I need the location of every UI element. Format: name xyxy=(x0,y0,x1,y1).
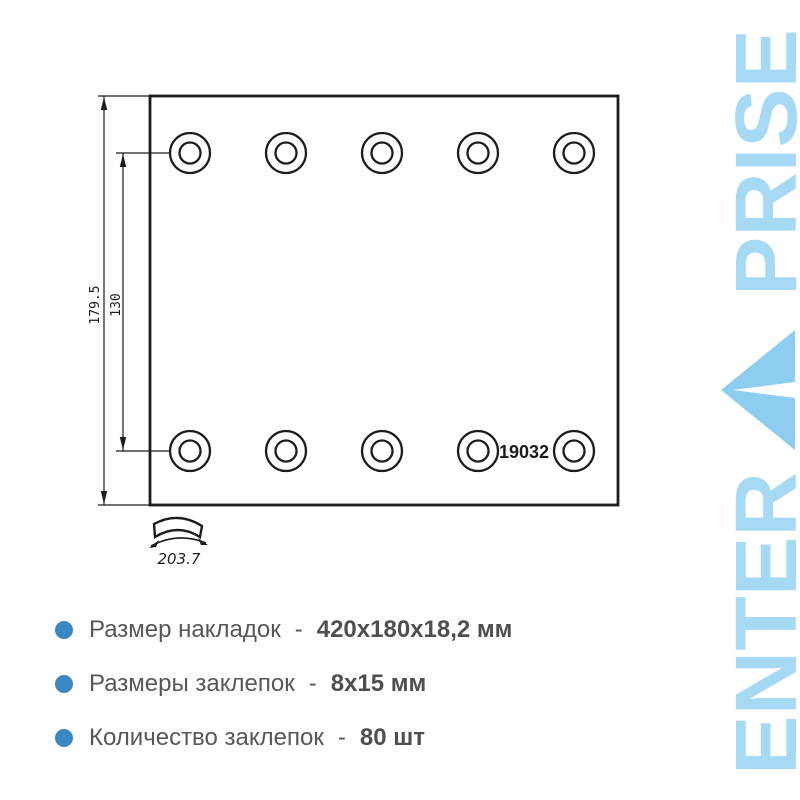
spec-value: 80 шт xyxy=(360,724,425,752)
spec-label: Размеры заклепок xyxy=(89,670,295,698)
arrowhead-up-icon xyxy=(120,154,126,167)
technical-drawing: 19032 179.5 130 203.7 xyxy=(0,0,700,600)
page: 19032 179.5 130 203.7 PR xyxy=(0,0,800,800)
dimension-arc-width xyxy=(149,538,208,548)
spec-value: 420х180х18,2 мм xyxy=(317,616,513,644)
spec-row-rivet-count: Количество заклепок - 80 шт xyxy=(55,711,512,765)
spec-dash: - xyxy=(338,724,346,752)
hole-spacing-value: 130 xyxy=(109,293,124,316)
bullet-icon xyxy=(55,675,73,693)
arrowhead-up-icon xyxy=(101,97,107,110)
spec-row-lining-size: Размер накладок - 420х180х18,2 мм xyxy=(55,603,512,657)
logo-word-prise: PRISE xyxy=(718,29,800,296)
spec-dash: - xyxy=(295,616,303,644)
arrowhead-left-icon xyxy=(149,540,159,548)
bullet-icon xyxy=(55,729,73,747)
enterprise-logo: PRISE ENTER xyxy=(700,0,800,800)
spec-dash: - xyxy=(309,670,317,698)
spec-row-rivet-size: Размеры заклепок - 8х15 мм xyxy=(55,657,512,711)
lining-arc-profile xyxy=(154,518,202,537)
part-number-label: 19032 xyxy=(499,442,549,462)
arrowhead-right-icon xyxy=(198,538,208,545)
logo-triangle-icon xyxy=(721,330,795,450)
arrowhead-down-icon xyxy=(101,491,107,504)
overall-height-value: 179.5 xyxy=(88,285,103,324)
spec-list: Размер накладок - 420х180х18,2 мм Размер… xyxy=(55,603,512,765)
spec-label: Количество заклепок xyxy=(89,724,324,752)
bullet-icon xyxy=(55,621,73,639)
arrowhead-down-icon xyxy=(120,437,126,450)
spec-label: Размер накладок xyxy=(89,616,281,644)
arc-width-value: 203.7 xyxy=(158,550,201,568)
spec-value: 8х15 мм xyxy=(331,670,427,698)
logo-word-enter: ENTER xyxy=(718,472,800,775)
